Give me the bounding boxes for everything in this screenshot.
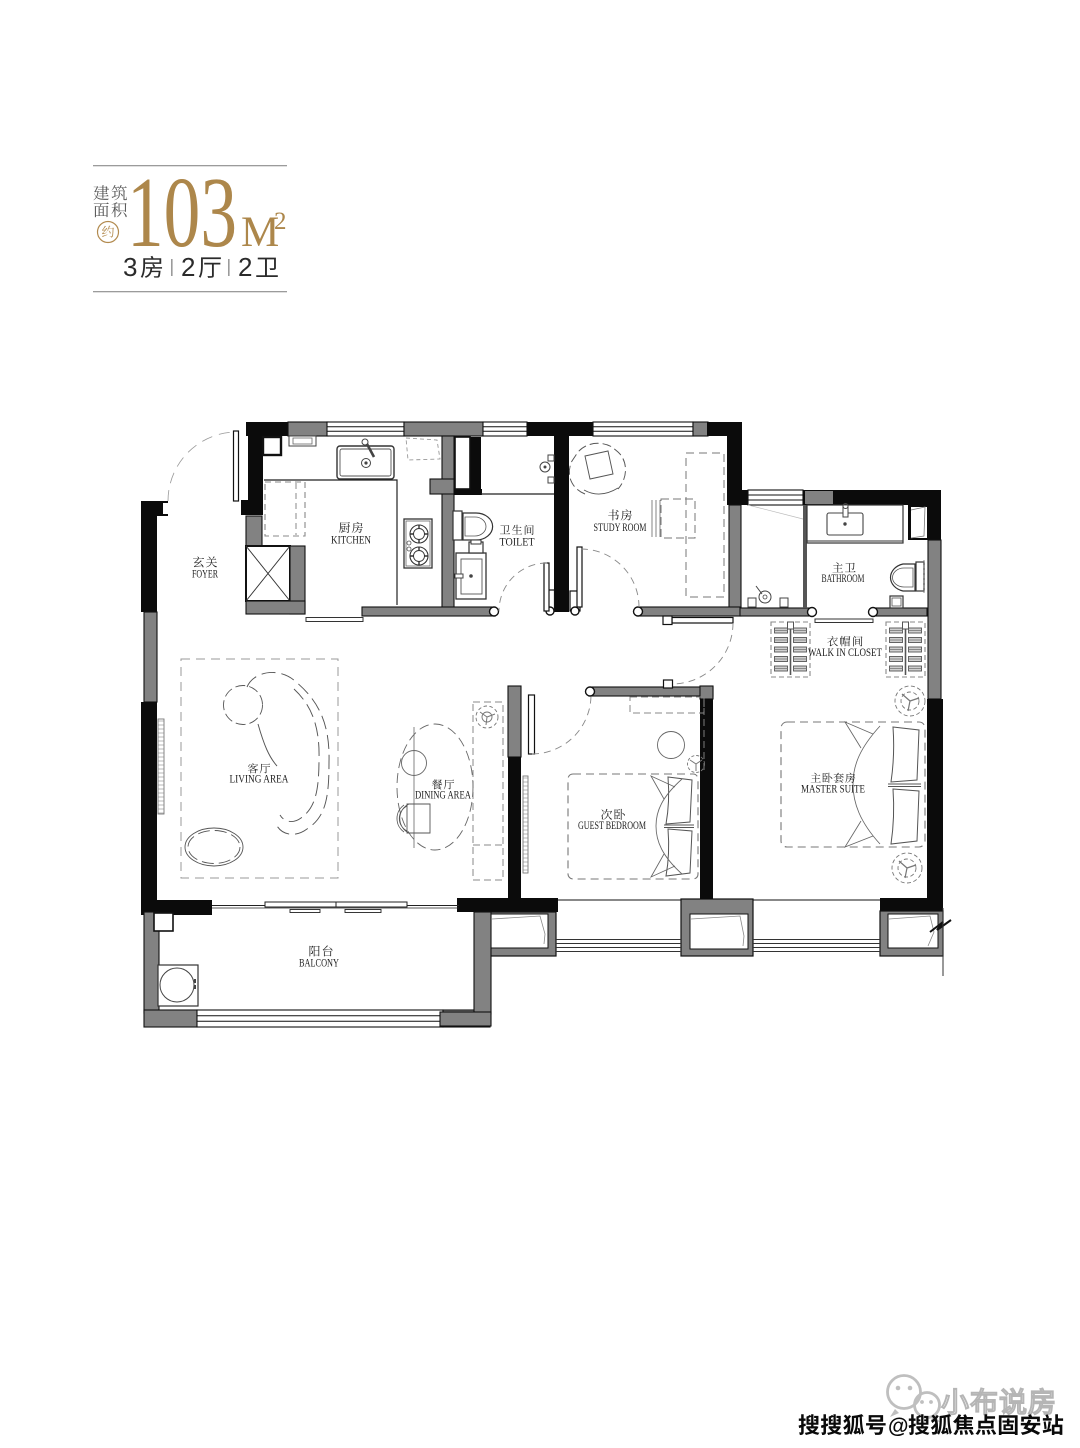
svg-text:LIVING AREA: LIVING AREA — [230, 774, 290, 786]
svg-text:FOYER: FOYER — [192, 569, 218, 581]
svg-text:2: 2 — [274, 208, 287, 235]
svg-text:GUEST BEDROOM: GUEST BEDROOM — [578, 820, 646, 832]
svg-text:TOILET: TOILET — [500, 537, 535, 549]
svg-text:MASTER SUITE: MASTER SUITE — [801, 784, 865, 796]
svg-text:STUDY ROOM: STUDY ROOM — [594, 522, 647, 534]
svg-text:BALCONY: BALCONY — [299, 958, 339, 970]
svg-text:@: @ — [888, 1415, 908, 1438]
svg-text:3: 3 — [123, 252, 137, 282]
svg-text:BATHROOM: BATHROOM — [822, 573, 865, 585]
svg-text:KITCHEN: KITCHEN — [331, 535, 372, 547]
svg-text:2: 2 — [238, 252, 252, 282]
svg-text:DINING AREA: DINING AREA — [415, 790, 472, 802]
svg-text:2: 2 — [181, 252, 195, 282]
svg-text:WALK IN CLOSET: WALK IN CLOSET — [808, 647, 882, 659]
